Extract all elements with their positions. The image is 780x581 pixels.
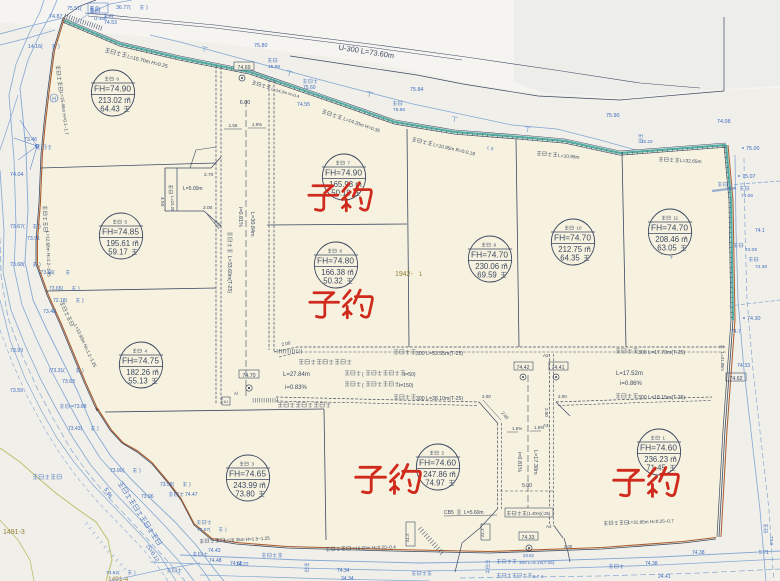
svg-text:FH=74.80: FH=74.80 <box>317 256 354 266</box>
svg-text:36.77(: 36.77( <box>116 5 131 11</box>
svg-text:33.82: 33.82 <box>523 553 535 558</box>
svg-text:i=0.81%: i=0.81% <box>516 452 522 472</box>
svg-text:73.43(: 73.43( <box>68 426 83 432</box>
svg-text:73.58(: 73.58( <box>160 482 175 488</box>
svg-text:L=31.85m: L=31.85m <box>720 352 725 371</box>
svg-text:2: 2 <box>155 368 158 373</box>
svg-text:L=17.52m: L=17.52m <box>616 371 643 377</box>
svg-text:FH=74.90: FH=74.90 <box>94 84 131 94</box>
svg-text:64.35: 64.35 <box>560 254 580 263</box>
svg-text:L=16.25: L=16.25 <box>170 196 175 212</box>
svg-text:15.22: 15.22 <box>641 139 653 144</box>
svg-text:1.9%: 1.9% <box>252 122 262 127</box>
svg-text:50.32: 50.32 <box>323 277 343 286</box>
svg-text:73.3: 73.3 <box>769 536 774 545</box>
svg-text:2.00: 2.00 <box>482 394 491 399</box>
svg-text:74.69: 74.69 <box>238 65 251 71</box>
svg-text:73.67(: 73.67( <box>197 527 211 533</box>
svg-text:74.38: 74.38 <box>692 550 705 556</box>
svg-text:A1-3: A1-3 <box>480 528 485 537</box>
svg-text:FH=74.60: FH=74.60 <box>640 443 677 453</box>
svg-text:FH=74.90: FH=74.90 <box>325 168 362 178</box>
svg-text:24.41: 24.41 <box>658 574 671 580</box>
svg-text:L=27.84m: L=27.84m <box>283 372 310 378</box>
svg-text:): ) <box>39 224 41 230</box>
svg-text:5-7.4: 5-7.4 <box>533 574 544 579</box>
svg-text:74.53: 74.53 <box>104 20 117 26</box>
svg-text:2: 2 <box>504 262 507 267</box>
svg-text:2: 2 <box>587 245 590 250</box>
svg-text:73.99: 73.99 <box>10 348 23 354</box>
svg-text:2: 2 <box>135 239 138 244</box>
svg-text:300 L=18.15m(T-25): 300 L=18.15m(T-25) <box>638 395 685 401</box>
svg-text:75.90: 75.90 <box>606 113 620 119</box>
svg-text:Al: Al <box>234 391 238 396</box>
svg-text:A1-5: A1-5 <box>405 533 410 542</box>
svg-text:73.48: 73.48 <box>43 309 56 315</box>
svg-text:i=0.83%: i=0.83% <box>285 385 308 391</box>
svg-text:5.00: 5.00 <box>522 483 532 489</box>
svg-text:300 L=53.55m(T-25): 300 L=53.55m(T-25) <box>416 351 463 357</box>
svg-text:75.00: 75.00 <box>746 146 760 152</box>
svg-text:74.41: 74.41 <box>552 365 565 371</box>
svg-text:10: 10 <box>577 226 583 231</box>
svg-text:2.00: 2.00 <box>203 205 213 211</box>
svg-text:59.17: 59.17 <box>108 248 128 257</box>
svg-text:73.96: 73.96 <box>141 494 154 500</box>
svg-text:7: 7 <box>670 255 673 261</box>
svg-text:74.87: 74.87 <box>49 14 63 20</box>
svg-text:i=0.81%: i=0.81% <box>237 207 243 227</box>
svg-text:72.18(: 72.18( <box>53 298 68 304</box>
svg-text:H: H <box>52 97 56 103</box>
svg-text:74.97: 74.97 <box>425 479 445 488</box>
svg-text:): ) <box>58 44 60 50</box>
svg-text:A2: A2 <box>543 353 549 358</box>
svg-text:1491-3: 1491-3 <box>3 529 25 536</box>
svg-text:FH=74.65: FH=74.65 <box>229 469 266 479</box>
svg-text:FH=74.60: FH=74.60 <box>419 458 456 468</box>
svg-text:11: 11 <box>674 216 679 221</box>
svg-text:74.62: 74.62 <box>730 376 743 382</box>
svg-text:73.68(: 73.68( <box>10 262 25 268</box>
svg-text:73.67(: 73.67( <box>10 224 25 230</box>
svg-text:74.55: 74.55 <box>297 102 310 108</box>
svg-text:2.70: 2.70 <box>204 172 214 178</box>
svg-text:=73.68: =73.68 <box>71 404 87 410</box>
svg-text:FH=74.75: FH=74.75 <box>122 356 159 366</box>
svg-text:74.1: 74.1 <box>755 228 765 234</box>
svg-text:74.47: 74.47 <box>185 492 198 498</box>
svg-text:74.08: 74.08 <box>745 247 757 253</box>
svg-text:FH=74.85: FH=74.85 <box>102 227 139 237</box>
svg-text:A1: A1 <box>224 400 229 404</box>
svg-text:300 L=17.70m(T-25): 300 L=17.70m(T-25) <box>638 350 685 356</box>
svg-text:74.08: 74.08 <box>717 119 731 125</box>
svg-text:34.34: 34.34 <box>341 576 354 581</box>
svg-text:CB5: CB5 <box>444 510 454 516</box>
svg-text:1491-4: 1491-4 <box>108 576 129 581</box>
svg-text:FH=74.70: FH=74.70 <box>471 250 508 260</box>
svg-text:1.55: 1.55 <box>229 123 238 128</box>
svg-text:75.51(: 75.51( <box>67 6 82 12</box>
svg-text:63.05: 63.05 <box>657 244 677 253</box>
svg-text:73.65(: 73.65( <box>49 286 64 292</box>
svg-text:300 L=38.10m(T-25): 300 L=38.10m(T-25) <box>416 396 463 402</box>
svg-text:2: 2 <box>350 268 353 273</box>
svg-text:74.38: 74.38 <box>755 264 767 270</box>
svg-text:2: 2 <box>127 96 130 101</box>
svg-text:73.46: 73.46 <box>24 137 37 143</box>
svg-text:i=0.86%: i=0.86% <box>620 381 643 387</box>
svg-text:2: 2 <box>262 481 265 486</box>
svg-text:): ) <box>39 262 41 268</box>
svg-text:73.90(: 73.90( <box>110 468 125 474</box>
svg-text:A3: A3 <box>543 423 549 428</box>
svg-text:73.80: 73.80 <box>235 490 255 499</box>
svg-text:75.84: 75.84 <box>410 87 424 93</box>
svg-text:L=5.00m: L=5.00m <box>183 186 203 192</box>
svg-text:2: 2 <box>684 235 687 240</box>
svg-text:74.70: 74.70 <box>242 373 255 379</box>
svg-text:74.38: 74.38 <box>645 561 658 567</box>
svg-text:6.00: 6.00 <box>240 100 251 106</box>
svg-text:A4: A4 <box>546 524 552 529</box>
svg-text:15.98: 15.98 <box>268 64 280 70</box>
svg-text:1942-: 1942- <box>395 271 414 278</box>
svg-text:74.34: 74.34 <box>337 568 350 574</box>
svg-text:4.50: 4.50 <box>159 197 165 207</box>
svg-text:2: 2 <box>673 455 676 460</box>
svg-text:L=33.60m(T-25): L=33.60m(T-25) <box>226 256 232 293</box>
svg-text:55.13: 55.13 <box>128 377 148 386</box>
svg-text:75.60: 75.60 <box>303 85 316 91</box>
svg-text:73.63: 73.63 <box>62 379 75 385</box>
svg-text:74.43: 74.43 <box>208 548 221 554</box>
svg-text:74.48: 74.48 <box>209 558 222 564</box>
svg-text:73.91: 73.91 <box>27 236 40 242</box>
svg-text:75.80: 75.80 <box>254 43 268 49</box>
svg-text:1.5%: 1.5% <box>512 426 522 431</box>
svg-text:2.00: 2.00 <box>558 394 567 399</box>
svg-text:t=50): t=50) <box>404 372 416 378</box>
svg-text:73.59: 73.59 <box>10 388 23 394</box>
svg-text:): ) <box>146 5 148 11</box>
svg-text:(1.40m)(-25): (1.40m)(-25) <box>527 511 551 516</box>
svg-text:74.33: 74.33 <box>522 535 535 541</box>
svg-text:t=150): t=150) <box>399 383 414 389</box>
svg-text:L=32.65m: L=32.65m <box>680 158 702 165</box>
svg-text:(73.31(: (73.31( <box>49 368 65 374</box>
svg-text:69.59: 69.59 <box>477 271 497 280</box>
svg-text:74.42: 74.42 <box>517 365 530 371</box>
svg-text:74.04: 74.04 <box>10 172 24 178</box>
svg-text:(73.66(: (73.66( <box>39 270 55 276</box>
svg-text:2: 2 <box>452 470 455 475</box>
svg-text:FH=74.70: FH=74.70 <box>554 233 591 243</box>
svg-text:5 71: 5 71 <box>759 550 769 556</box>
svg-text:74.7: 74.7 <box>731 329 741 335</box>
svg-text:2.00: 2.00 <box>564 544 573 549</box>
svg-text:74.22: 74.22 <box>236 562 249 568</box>
svg-text:2.00: 2.00 <box>544 408 549 417</box>
svg-text:64.43: 64.43 <box>100 105 120 114</box>
svg-text:74.06: 74.06 <box>741 193 753 199</box>
svg-text:L=30.84m: L=30.84m <box>249 212 255 237</box>
svg-text:L=17.30m: L=17.30m <box>532 450 538 475</box>
svg-text:75.95: 75.95 <box>393 107 405 113</box>
svg-text:300 L=5.10(T-25): 300 L=5.10(T-25) <box>519 560 555 565</box>
svg-text:14.16(: 14.16( <box>28 44 43 50</box>
svg-text:FH=74.70: FH=74.70 <box>651 223 688 233</box>
